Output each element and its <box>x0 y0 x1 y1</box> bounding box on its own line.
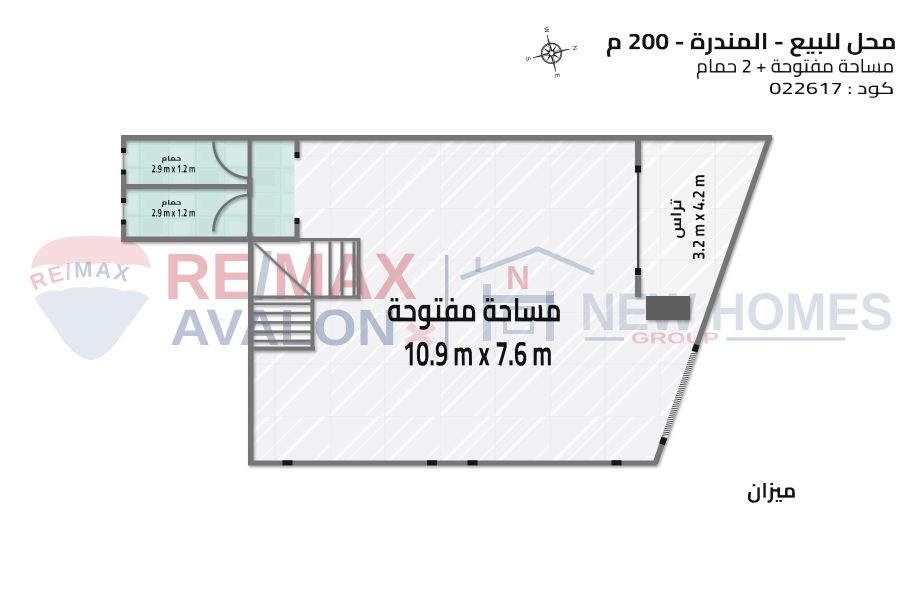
svg-text:N: N <box>506 259 530 296</box>
svg-text:GROUP: GROUP <box>631 331 719 348</box>
svg-text:NEW HOMES: NEW HOMES <box>580 283 893 342</box>
